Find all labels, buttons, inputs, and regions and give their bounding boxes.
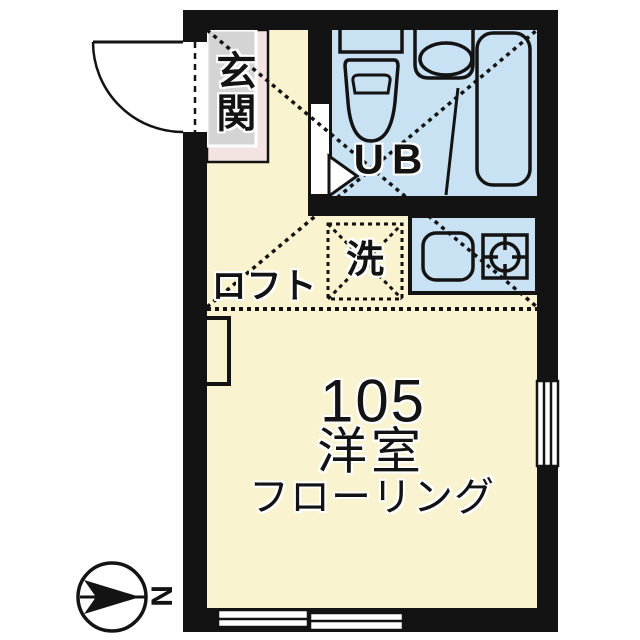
toilet-bowl-icon: [345, 60, 398, 141]
entry-door-swing-arc: [93, 42, 183, 132]
unit-bath-label: UB: [354, 139, 431, 182]
toilet-seat-icon: [353, 75, 390, 93]
floor-plan-drawing: [0, 0, 640, 640]
floor-plan: 玄関 UB 洗 ロフト 105 洋室 フローリング N: [0, 0, 640, 640]
wall-top: [183, 10, 558, 30]
loft-label: ロフト: [211, 269, 316, 305]
bathtub-icon: [477, 33, 530, 185]
wall-bath-lower: [308, 196, 558, 216]
side-window: [537, 381, 558, 466]
entrance-label: 玄関: [212, 50, 253, 134]
sliding-window: [218, 610, 403, 630]
unit-number: 105: [320, 370, 426, 431]
north-arrow-icon: [78, 563, 146, 631]
north-label: N: [145, 585, 176, 607]
washing-machine-label: 洗: [346, 242, 384, 281]
room-type-label: 洋室: [317, 427, 425, 478]
vanity-basin-icon: [420, 43, 472, 75]
kitchen-sink-icon: [423, 233, 473, 280]
flooring-label: フローリング: [249, 478, 495, 519]
wall-right: [537, 10, 558, 632]
